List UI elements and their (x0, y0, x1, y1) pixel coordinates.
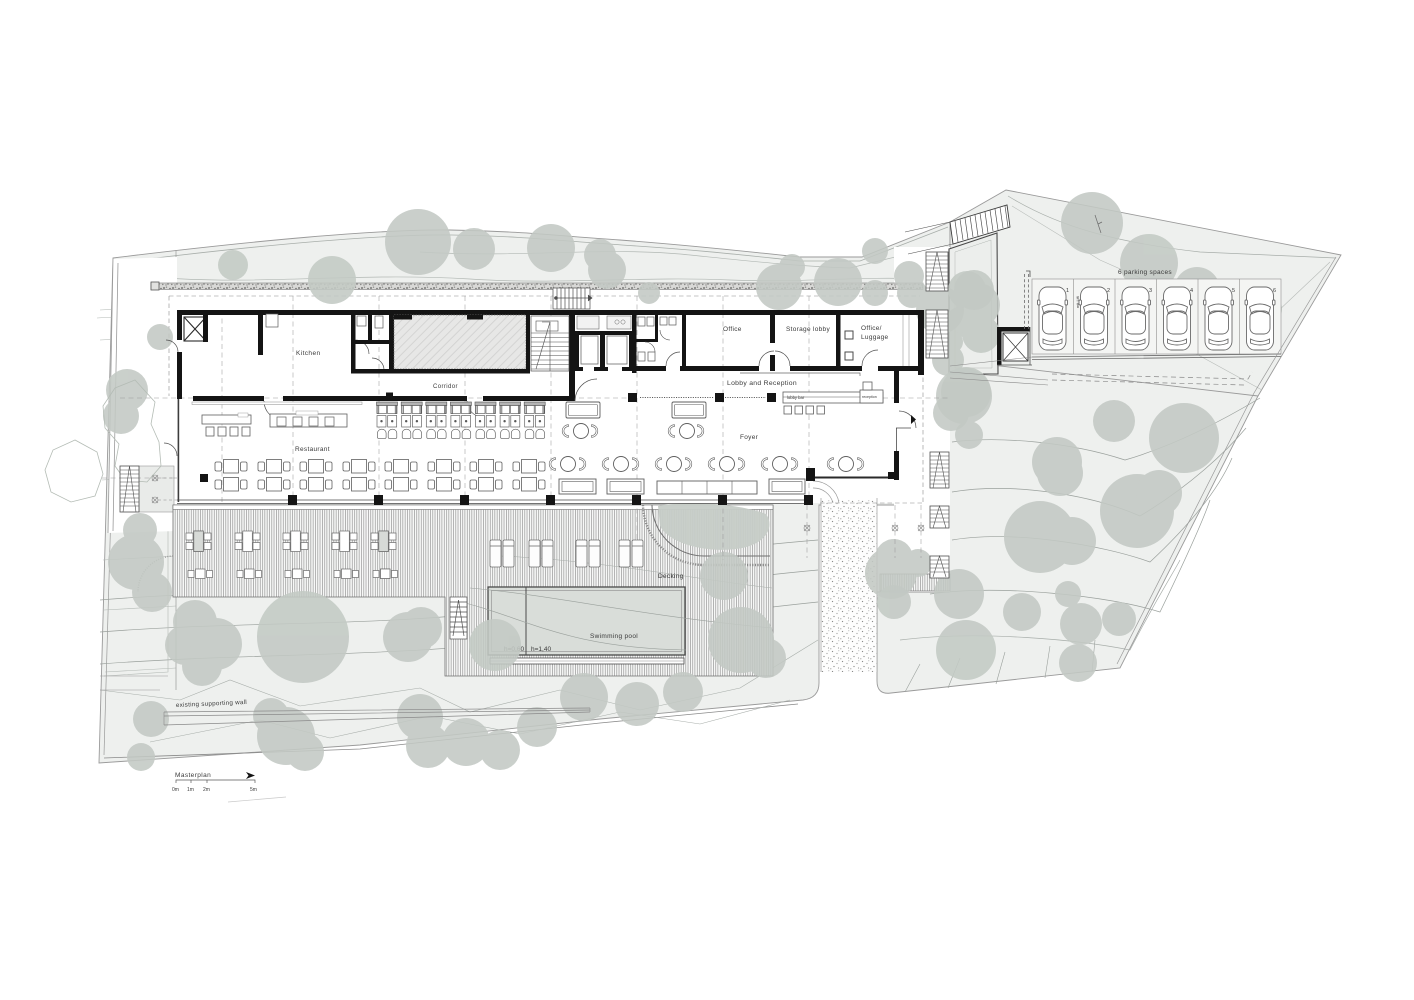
svg-text:Office: Office (723, 326, 742, 333)
svg-text:3: 3 (1149, 288, 1152, 294)
svg-text:Lobby and Reception: Lobby and Reception (727, 380, 797, 387)
svg-text:0m: 0m (172, 787, 179, 793)
svg-text:1m: 1m (187, 787, 194, 793)
svg-text:2m: 2m (203, 787, 210, 793)
svg-text:Foyer: Foyer (740, 434, 759, 441)
svg-text:Storage lobby: Storage lobby (786, 326, 830, 333)
svg-text:5: 5 (1232, 288, 1235, 294)
svg-text:Decking: Decking (658, 573, 684, 580)
svg-text:reception: reception (862, 395, 877, 399)
svg-text:1: 1 (1066, 288, 1069, 294)
svg-text:Office/: Office/ (861, 325, 882, 332)
svg-text:Corridor: Corridor (433, 384, 458, 390)
svg-text:h=1,40: h=1,40 (531, 646, 551, 653)
svg-text:Restaurant: Restaurant (295, 446, 330, 453)
svg-text:mit Lift: mit Lift (1075, 295, 1080, 308)
svg-text:lobby bar: lobby bar (787, 395, 805, 400)
svg-text:Masterplan: Masterplan (175, 772, 211, 779)
svg-text:Swimming pool: Swimming pool (590, 633, 638, 640)
svg-text:Kitchen: Kitchen (296, 350, 320, 357)
svg-text:Luggage: Luggage (861, 334, 888, 341)
svg-text:5m: 5m (250, 787, 257, 793)
svg-text:6 parking spaces: 6 parking spaces (1118, 269, 1172, 276)
